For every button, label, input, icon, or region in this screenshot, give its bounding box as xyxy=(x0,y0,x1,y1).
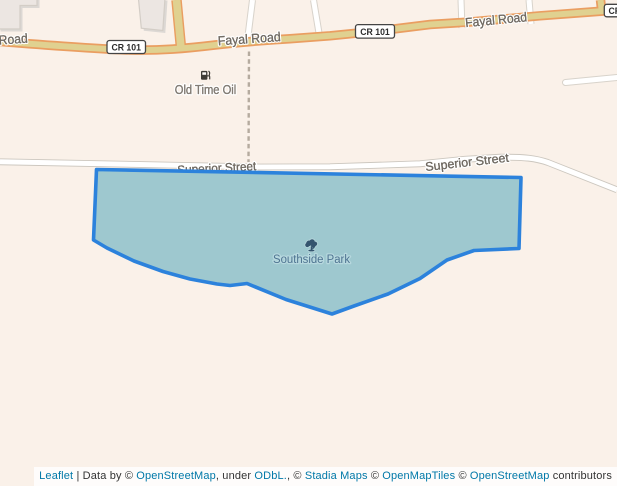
svg-text:CR 101: CR 101 xyxy=(609,6,617,17)
svg-text:CR 101: CR 101 xyxy=(360,27,390,38)
svg-text:CR 101: CR 101 xyxy=(111,42,141,53)
svg-text:Old Time Oil: Old Time Oil xyxy=(175,82,237,97)
svg-text:Southside Park: Southside Park xyxy=(273,254,350,266)
svg-text:Road: Road xyxy=(0,31,28,48)
